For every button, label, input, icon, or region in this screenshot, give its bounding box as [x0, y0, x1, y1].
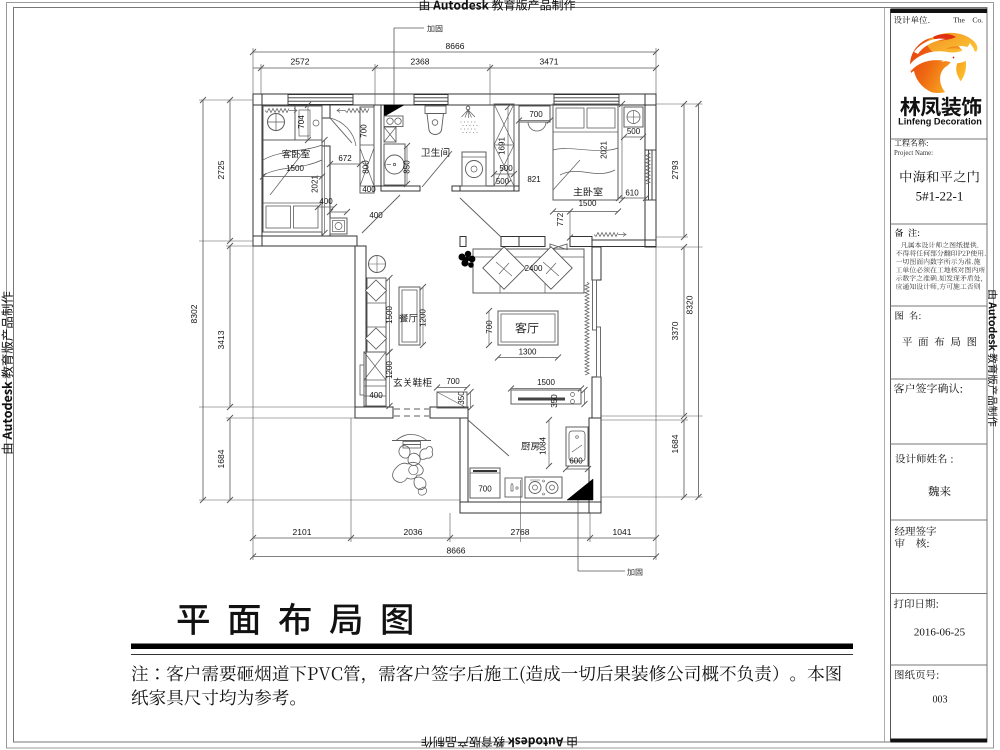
svg-text:Linfeng Decoration: Linfeng Decoration [898, 117, 982, 127]
svg-text:8666: 8666 [447, 546, 466, 556]
svg-text:821: 821 [527, 175, 541, 184]
svg-text:2368: 2368 [411, 57, 430, 67]
svg-text:1684: 1684 [670, 434, 680, 453]
svg-text:400: 400 [319, 197, 333, 206]
svg-text:2400: 2400 [525, 264, 543, 273]
svg-text:3370: 3370 [670, 321, 680, 340]
svg-text:1500: 1500 [579, 199, 597, 208]
svg-text:500: 500 [499, 164, 513, 173]
svg-text:2768: 2768 [511, 527, 530, 537]
svg-text:8320: 8320 [685, 295, 695, 314]
svg-text:003: 003 [933, 695, 948, 706]
svg-text:3413: 3413 [216, 330, 226, 349]
svg-text:2036: 2036 [404, 527, 423, 537]
svg-text:1500: 1500 [537, 378, 555, 387]
svg-text:5#1-22-1: 5#1-22-1 [916, 189, 964, 204]
svg-text:350: 350 [457, 391, 466, 405]
svg-text:8666: 8666 [446, 41, 465, 51]
svg-text:2725: 2725 [216, 160, 226, 179]
svg-text:1041: 1041 [613, 527, 632, 537]
svg-text:700: 700 [529, 110, 543, 119]
svg-text:1691: 1691 [498, 137, 507, 155]
svg-text:800: 800 [362, 160, 371, 174]
svg-text:Project Name:: Project Name: [894, 150, 933, 157]
svg-text:2101: 2101 [293, 527, 312, 537]
svg-text:600: 600 [569, 457, 583, 466]
svg-text:1684: 1684 [216, 449, 226, 468]
svg-text:610: 610 [625, 189, 639, 198]
svg-text:8302: 8302 [189, 304, 199, 323]
svg-text:400: 400 [369, 211, 383, 220]
svg-text:3471: 3471 [540, 57, 559, 67]
svg-text:The Co.: The Co. [953, 16, 983, 25]
svg-text:700: 700 [485, 320, 494, 334]
svg-text:400: 400 [369, 391, 383, 400]
svg-text:672: 672 [338, 154, 352, 163]
svg-text:1500: 1500 [286, 164, 304, 173]
svg-text:2016-06-25: 2016-06-25 [914, 627, 966, 639]
svg-text:700: 700 [478, 485, 492, 494]
svg-text:772: 772 [556, 212, 565, 226]
svg-text:2021: 2021 [600, 141, 609, 159]
svg-text:1300: 1300 [519, 348, 537, 357]
svg-text:700: 700 [446, 377, 460, 386]
svg-text:1084: 1084 [539, 437, 548, 455]
svg-text:2572: 2572 [291, 57, 310, 67]
svg-text:704: 704 [297, 115, 306, 129]
svg-text:2793: 2793 [670, 160, 680, 179]
svg-text:500: 500 [496, 177, 510, 186]
svg-text:350: 350 [550, 394, 559, 408]
svg-text:700: 700 [360, 124, 369, 138]
svg-text:500: 500 [627, 127, 641, 136]
svg-text:400: 400 [362, 185, 376, 194]
svg-text:2021: 2021 [311, 175, 320, 193]
